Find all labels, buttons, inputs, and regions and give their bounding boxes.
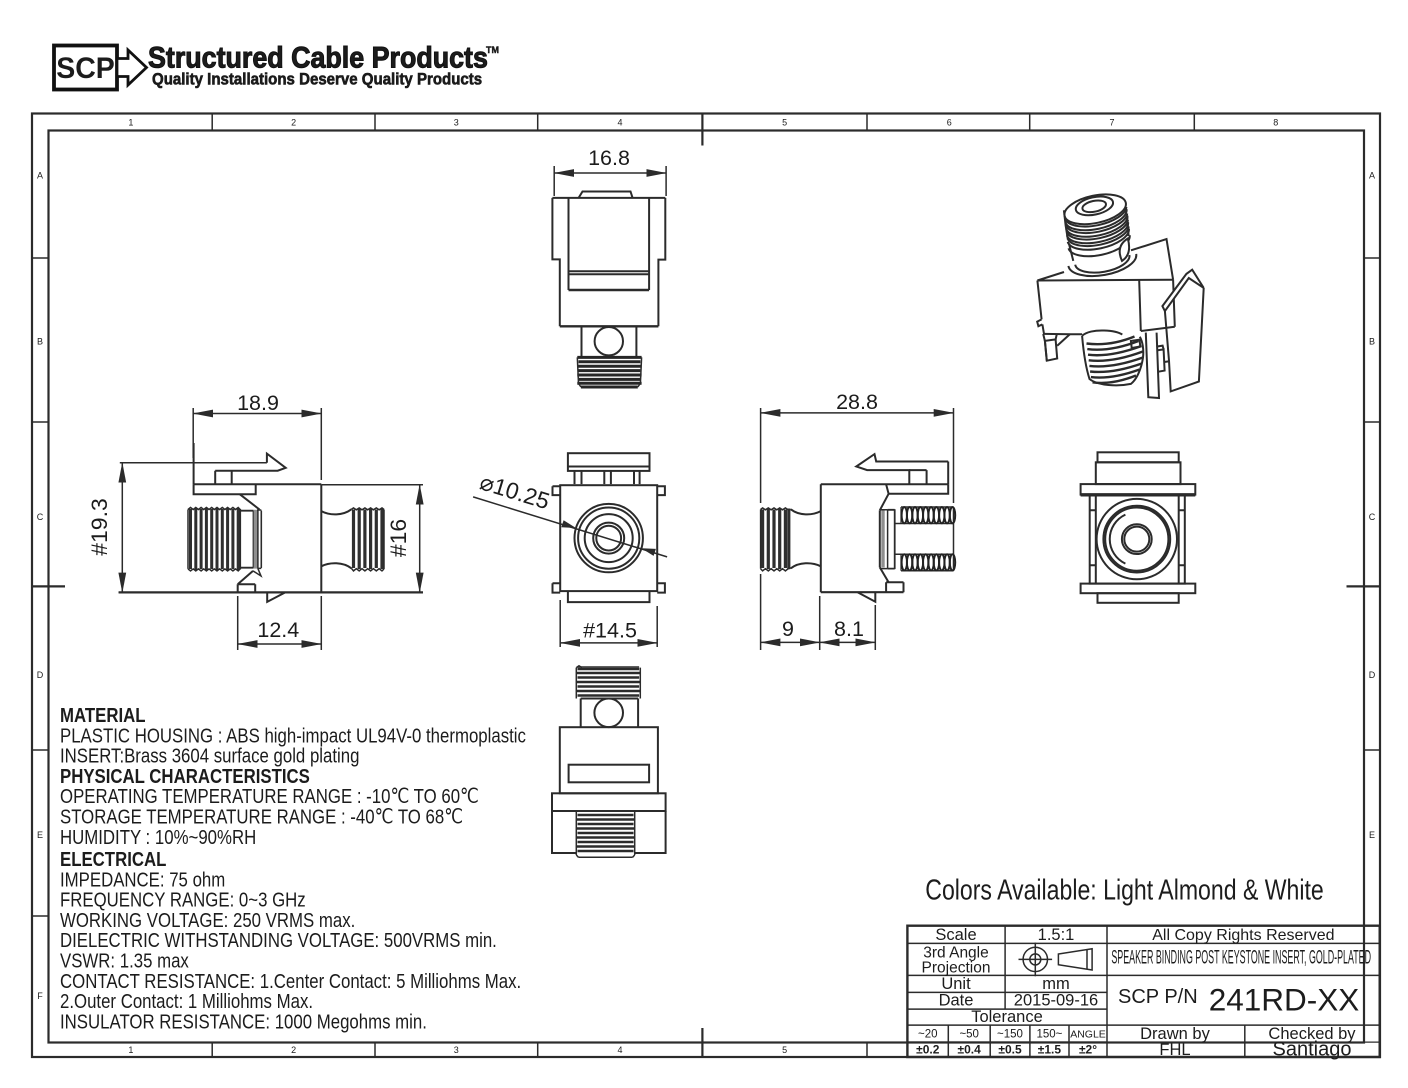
svg-text:±1.5: ±1.5: [1038, 1043, 1062, 1057]
svg-text:#16: #16: [386, 519, 410, 557]
svg-text:Date: Date: [939, 992, 974, 1010]
svg-text:E: E: [37, 830, 43, 840]
svg-text:#14.5: #14.5: [583, 619, 637, 643]
svg-text:3: 3: [454, 118, 459, 128]
svg-text:~50: ~50: [959, 1029, 979, 1041]
svg-text:28.8: 28.8: [836, 390, 878, 414]
svg-text:~20: ~20: [918, 1029, 938, 1041]
svg-text:2: 2: [291, 118, 296, 128]
svg-text:12.4: 12.4: [257, 618, 299, 642]
svg-text:7: 7: [1109, 118, 1114, 128]
svg-text:16.8: 16.8: [588, 146, 630, 170]
svg-text:Unit: Unit: [941, 975, 971, 993]
svg-text:3: 3: [454, 1045, 459, 1055]
svg-text:Colors Available: Light Almond: Colors Available: Light Almond & White: [925, 875, 1323, 906]
svg-text:2: 2: [291, 1045, 296, 1055]
svg-text:B: B: [1369, 337, 1375, 347]
svg-text:Quality Installations Deserve: Quality Installations Deserve Quality Pr…: [152, 70, 482, 89]
svg-text:TM: TM: [486, 45, 499, 55]
svg-text:1.5:1: 1.5:1: [1038, 926, 1075, 944]
svg-text:All Copy Rights Reserved: All Copy Rights Reserved: [1152, 927, 1334, 944]
svg-text:8: 8: [1273, 118, 1278, 128]
svg-text:ANGLE: ANGLE: [1070, 1029, 1106, 1041]
svg-text:6: 6: [947, 118, 952, 128]
svg-text:A: A: [37, 171, 43, 181]
svg-text:±0.2: ±0.2: [916, 1043, 940, 1057]
svg-text:#19.3: #19.3: [87, 498, 111, 556]
svg-text:D: D: [1369, 670, 1376, 680]
svg-text:4: 4: [617, 118, 622, 128]
svg-text:±2°: ±2°: [1079, 1043, 1097, 1057]
svg-text:Projection: Projection: [922, 960, 991, 977]
svg-text:F: F: [37, 991, 43, 1001]
svg-text:SPEAKER BINDING POST KEYSTONE: SPEAKER BINDING POST KEYSTONE INSERT, GO…: [1111, 948, 1371, 968]
svg-text:C: C: [37, 512, 44, 522]
svg-text:Tolerance: Tolerance: [971, 1008, 1043, 1026]
svg-text:A: A: [1369, 171, 1375, 181]
svg-text:SCP: SCP: [56, 52, 115, 85]
svg-text:HUMIDITY : 10%~90%RH: HUMIDITY : 10%~90%RH: [60, 825, 256, 848]
svg-text:FHL: FHL: [1159, 1041, 1190, 1059]
svg-text:241RD-XX: 241RD-XX: [1209, 982, 1360, 1018]
svg-text:B: B: [37, 337, 43, 347]
svg-text:2015-09-16: 2015-09-16: [1014, 992, 1098, 1010]
svg-text:1: 1: [128, 1045, 133, 1055]
svg-text:±0.5: ±0.5: [998, 1043, 1022, 1057]
svg-text:D: D: [37, 670, 44, 680]
svg-text:5: 5: [782, 1045, 787, 1055]
svg-text:SCP P/N: SCP P/N: [1118, 986, 1198, 1008]
svg-text:Scale: Scale: [935, 926, 976, 944]
svg-text:18.9: 18.9: [237, 391, 279, 415]
svg-text:5: 5: [782, 118, 787, 128]
svg-text:mm: mm: [1042, 975, 1070, 993]
svg-text:150~: 150~: [1036, 1029, 1062, 1041]
svg-text:±0.4: ±0.4: [958, 1043, 982, 1057]
svg-text:4: 4: [617, 1045, 622, 1055]
svg-text:C: C: [1369, 512, 1376, 522]
svg-text:9: 9: [782, 617, 794, 641]
svg-text:E: E: [1369, 830, 1375, 840]
svg-text:Santiago: Santiago: [1273, 1039, 1352, 1061]
svg-text:1: 1: [128, 118, 133, 128]
svg-text:8.1: 8.1: [834, 617, 864, 641]
svg-text:~150: ~150: [997, 1029, 1023, 1041]
svg-text:INSULATOR RESISTANCE: 1000 Meg: INSULATOR RESISTANCE: 1000 Megohms min.: [60, 1010, 427, 1033]
